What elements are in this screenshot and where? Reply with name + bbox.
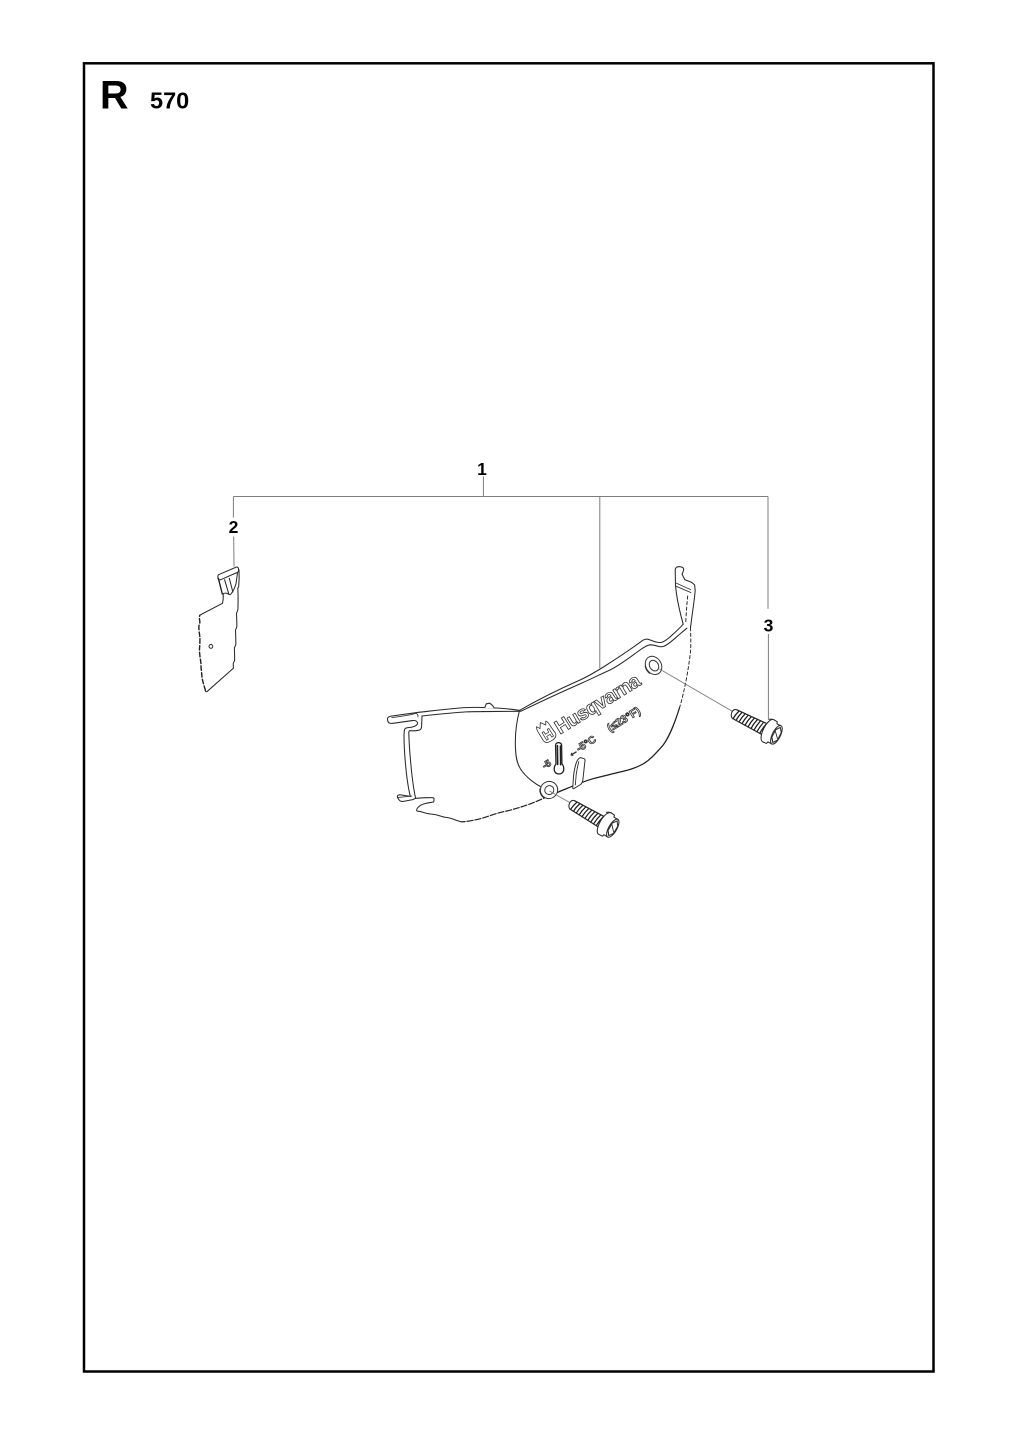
svg-text:1: 1 [477, 459, 487, 479]
svg-text:3: 3 [764, 615, 774, 635]
svg-text:R: R [100, 74, 129, 118]
svg-text:2: 2 [229, 517, 239, 537]
svg-text:570: 570 [150, 88, 189, 114]
